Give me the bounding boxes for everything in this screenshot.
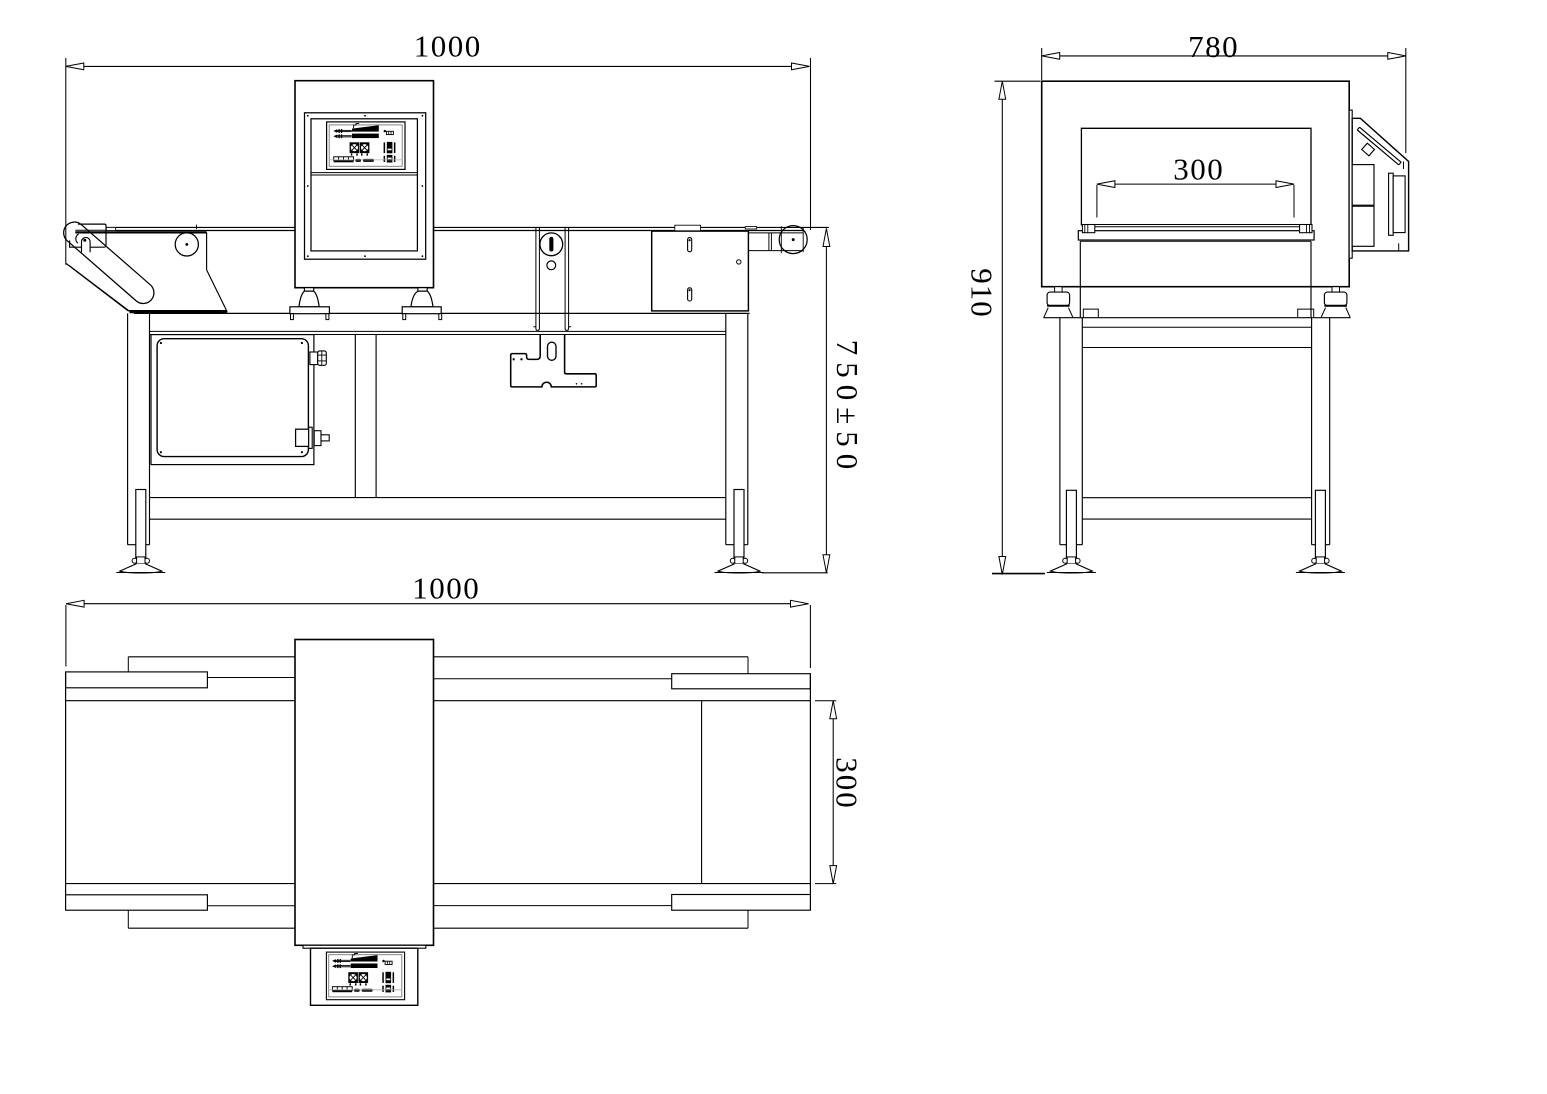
svg-text:750±50: 750±50 xyxy=(830,340,865,477)
svg-text:300: 300 xyxy=(1173,152,1224,187)
svg-text:780: 780 xyxy=(1188,29,1239,64)
svg-text:300: 300 xyxy=(829,757,864,810)
svg-text:910: 910 xyxy=(965,268,1000,318)
svg-text:1000: 1000 xyxy=(414,29,482,64)
svg-text:1000: 1000 xyxy=(412,571,480,606)
